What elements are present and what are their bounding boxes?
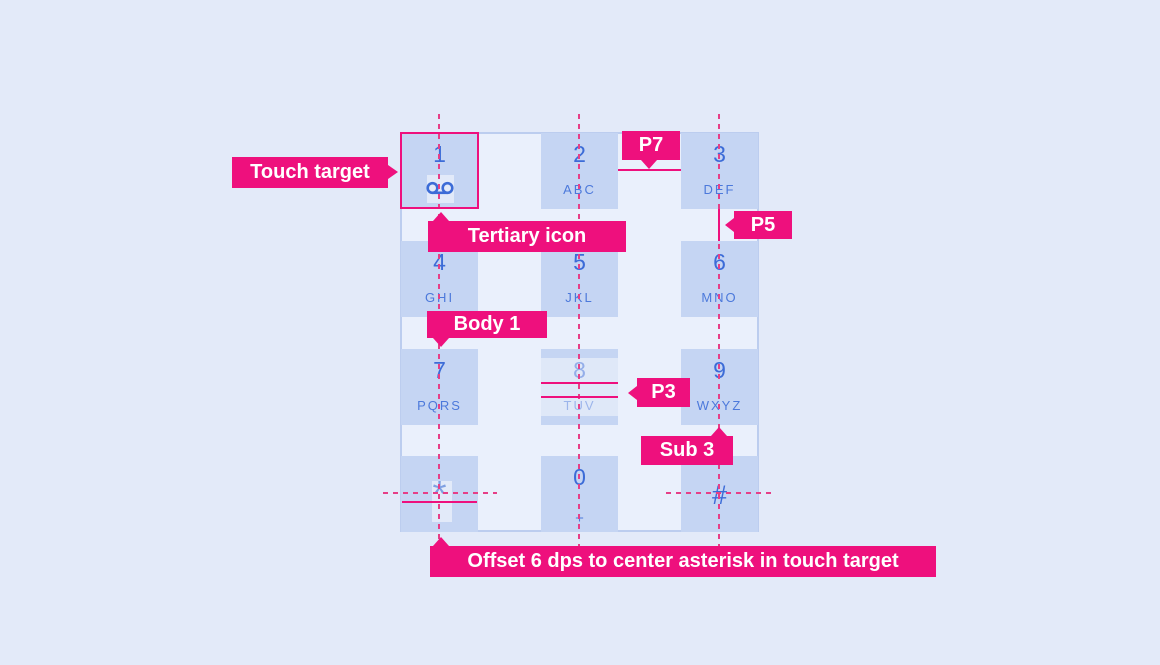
touch-target-outline bbox=[400, 132, 479, 209]
body1-label: Body 1 bbox=[427, 311, 547, 338]
p5-label: P5 bbox=[734, 211, 792, 239]
p7-caret bbox=[641, 160, 657, 169]
asterisk-offset-line bbox=[402, 501, 477, 503]
body1-label-text: Body 1 bbox=[454, 313, 521, 336]
touch-target-label: Touch target bbox=[232, 157, 388, 188]
sub3-label-text: Sub 3 bbox=[660, 439, 714, 462]
guide-vertical-col3 bbox=[718, 114, 720, 546]
touch-target-caret bbox=[388, 165, 398, 179]
guide-horizontal-asterisk bbox=[383, 492, 497, 494]
body1-caret bbox=[433, 338, 449, 347]
p5-caret bbox=[725, 218, 734, 232]
sub3-label: Sub 3 bbox=[641, 436, 733, 465]
p3-measure-line-top bbox=[541, 382, 618, 384]
guide-horizontal-hash bbox=[666, 492, 772, 494]
tertiary-icon-label-text: Tertiary icon bbox=[468, 225, 587, 248]
offset-note-caret bbox=[433, 537, 449, 546]
p3-caret bbox=[628, 386, 637, 400]
p7-label-text: P7 bbox=[639, 134, 663, 157]
offset-note-label-text: Offset 6 dps to center asterisk in touch… bbox=[467, 550, 898, 573]
p5-measure-line bbox=[718, 209, 720, 241]
tertiary-icon-caret bbox=[433, 212, 449, 221]
p3-label: P3 bbox=[637, 378, 690, 407]
touch-target-label-text: Touch target bbox=[250, 161, 370, 184]
sub3-caret bbox=[711, 427, 727, 436]
p3-measure-line-bottom bbox=[541, 396, 618, 398]
p7-label: P7 bbox=[622, 131, 680, 160]
tertiary-icon-label: Tertiary icon bbox=[428, 221, 626, 252]
offset-note-label: Offset 6 dps to center asterisk in touch… bbox=[430, 546, 936, 577]
p5-label-text: P5 bbox=[751, 214, 775, 237]
guide-vertical-col2 bbox=[578, 114, 580, 546]
p7-measure-line bbox=[618, 169, 681, 171]
p3-label-text: P3 bbox=[651, 381, 675, 404]
